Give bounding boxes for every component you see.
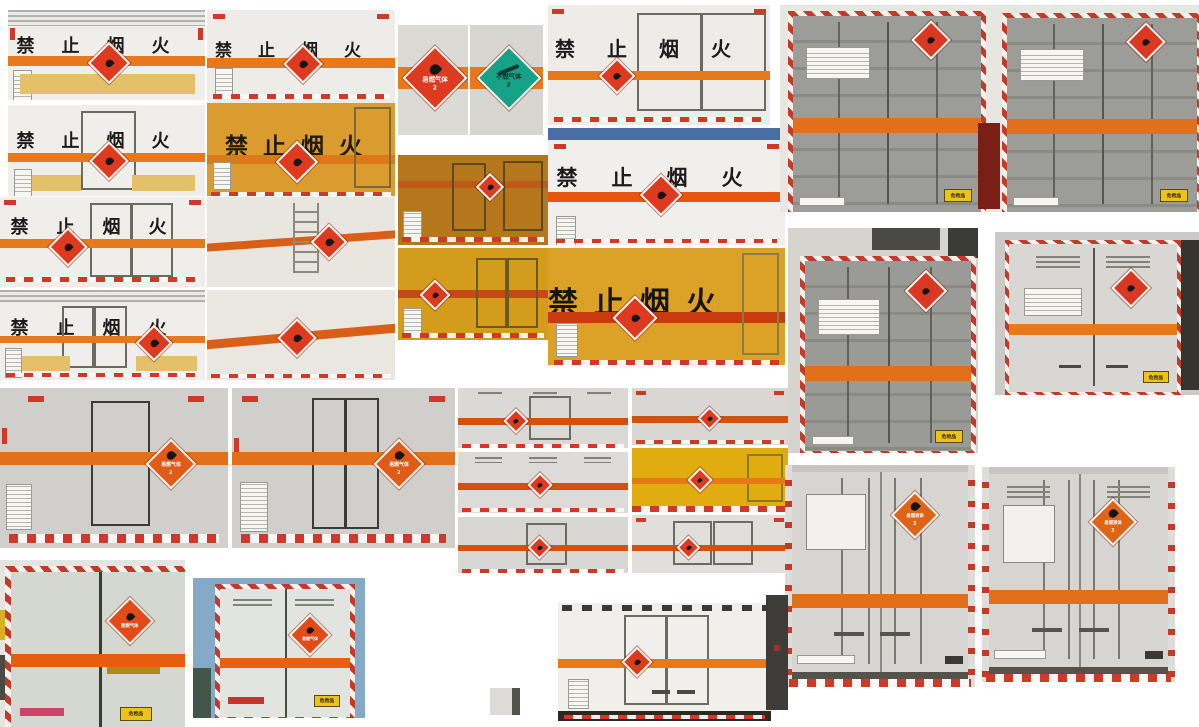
dark-plate xyxy=(945,656,963,664)
photo-no-fire-truck-side-1: 禁止烟火 xyxy=(8,10,205,100)
flammable-liquid-placard-icon: 易燃液体 3 xyxy=(891,491,939,539)
roof-rails xyxy=(0,290,205,303)
reflective-strip xyxy=(632,506,788,512)
reflector-mark xyxy=(554,144,566,149)
warning-stripe xyxy=(989,590,1168,604)
lock-rod xyxy=(1093,248,1095,386)
door-center-gap xyxy=(880,472,882,672)
bumper-shadow xyxy=(989,667,1168,674)
top-rail xyxy=(989,467,1168,474)
lock-rod xyxy=(1068,480,1070,660)
flame-icon xyxy=(612,71,621,80)
photo-truck-side-angled-1 xyxy=(207,197,395,287)
photo-no-fire-orange-box: 禁止烟火 xyxy=(207,103,395,196)
flammable-placard-icon xyxy=(527,472,552,497)
reflector-mark xyxy=(429,396,445,402)
flame-icon xyxy=(324,237,335,248)
flame-icon xyxy=(431,291,439,299)
bottom-label xyxy=(994,650,1046,659)
photo-box-truck-rear-large-2: 易燃液体 3 xyxy=(982,467,1175,682)
reflective-strip xyxy=(789,679,971,687)
reflective-strip xyxy=(6,277,199,282)
reflective-strip xyxy=(211,374,391,378)
photo-small-truck-rear-2: 危险品 易燃气体 xyxy=(193,578,365,718)
warning-stripe xyxy=(458,418,628,425)
vent-grille xyxy=(1106,256,1150,270)
latch-handle xyxy=(880,632,910,636)
rear-door-left xyxy=(476,258,509,328)
photo-panel-plain-2 xyxy=(458,452,628,513)
photo-collage: 禁止烟火 禁止烟火 禁止烟火 禁止烟火 禁止烟火 xyxy=(0,0,1199,727)
info-plate xyxy=(818,299,880,335)
photo-amber-box-rear xyxy=(398,155,548,245)
flammable-gas-placard-icon: 易燃气体 2 xyxy=(374,438,425,489)
bottom-label xyxy=(1013,197,1059,206)
flame-icon xyxy=(922,287,931,296)
vent-grille xyxy=(478,392,502,397)
photo-two-container-trucks: 危险品 危险品 xyxy=(780,5,1199,212)
photo-panel-door-2 xyxy=(458,517,628,573)
flame-icon xyxy=(124,611,135,622)
reflector-mark xyxy=(767,144,779,149)
warning-stripe xyxy=(1009,324,1177,335)
photo-small-truck-rear-1: 危险品 易燃气体 xyxy=(0,560,185,727)
reflector-mark xyxy=(774,645,780,651)
vent-grille xyxy=(584,457,611,463)
latch-handle xyxy=(1079,628,1109,632)
placard-label: 易燃气体 xyxy=(422,77,448,83)
lock-rod xyxy=(887,22,889,204)
photo-no-fire-truck-rear-2: 禁止烟火 xyxy=(0,290,205,380)
flame-icon xyxy=(486,183,494,191)
photo-no-fire-yellow-box-side: 禁止烟火 xyxy=(548,248,785,365)
placard-class: 2 xyxy=(506,81,510,87)
danger-goods-plate: 危险品 xyxy=(1143,371,1169,383)
flame-icon xyxy=(706,415,712,421)
vent-grille xyxy=(233,599,272,608)
flame-icon xyxy=(306,626,315,635)
warning-stripe xyxy=(220,658,350,668)
danger-goods-plate: 危险品 xyxy=(944,189,972,202)
label-bar-pink xyxy=(20,708,64,716)
warning-stripe xyxy=(0,336,205,343)
flame-icon xyxy=(298,59,309,70)
bottom-label xyxy=(812,436,854,445)
reflector-mark xyxy=(188,396,204,402)
flame-icon xyxy=(685,544,691,550)
flame-icon xyxy=(148,338,159,349)
flame-icon xyxy=(926,35,935,44)
container-truck-rear: 危险品 xyxy=(800,256,976,453)
vent-grille xyxy=(1007,486,1050,500)
lock-rod xyxy=(868,478,870,664)
warning-stripe xyxy=(792,594,968,608)
flammable-liquid-placard-icon: 易燃液体 3 xyxy=(1089,498,1137,546)
photo-no-fire-truck-side-blue-top: 禁止烟火 xyxy=(548,128,785,245)
flame-icon xyxy=(292,157,303,168)
reflective-strip xyxy=(241,534,446,543)
latch-handle xyxy=(834,632,864,636)
container-truck-rear-left: 危险品 xyxy=(788,11,986,212)
info-plate xyxy=(806,47,870,79)
yellow-band xyxy=(132,175,195,191)
flame-icon xyxy=(62,242,73,253)
roof-rail xyxy=(562,605,767,611)
flammable-placard-icon xyxy=(1111,268,1151,308)
flame-icon xyxy=(513,418,519,424)
flammable-gas-placard-icon: 易燃气体 xyxy=(289,614,331,656)
flame-icon xyxy=(656,190,667,201)
flammable-gas-placard-icon: 易燃气体 xyxy=(105,597,153,645)
red-truck-between xyxy=(978,123,1000,209)
danger-goods-plate: 危险品 xyxy=(1160,189,1188,202)
latch-handle xyxy=(652,690,670,694)
warning-stripe xyxy=(1007,119,1197,134)
info-plate xyxy=(213,162,231,190)
flammable-placard-icon xyxy=(687,467,712,492)
reflective-strip xyxy=(556,239,777,243)
background-object xyxy=(193,668,211,718)
photo-box-truck-rear-vents: 危险品 xyxy=(995,232,1199,395)
reflector-mark xyxy=(213,14,225,19)
warning-stripe xyxy=(632,545,788,551)
reflective-strip xyxy=(554,117,764,122)
flame-icon xyxy=(103,58,114,69)
warning-stripe xyxy=(548,71,770,80)
latch-handle xyxy=(1059,365,1081,368)
rear-door-left xyxy=(637,13,703,111)
bottom-label xyxy=(799,197,845,206)
rear-door xyxy=(354,107,391,188)
warning-stripe xyxy=(805,366,971,381)
reflector-mark xyxy=(377,14,389,19)
flammable-gas-placard-icon: 易燃气体 2 xyxy=(145,438,196,489)
awning-dark xyxy=(872,228,940,250)
info-plate xyxy=(556,323,578,357)
info-plate xyxy=(14,169,32,196)
flammable-placard-icon xyxy=(503,408,528,433)
warning-stripe xyxy=(11,654,185,667)
info-plate xyxy=(568,679,589,709)
flame-icon xyxy=(428,62,443,77)
rear-doors: 易燃液体 3 xyxy=(989,474,1168,667)
info-plate xyxy=(1024,288,1082,316)
photo-non-flammable-gas-placard: 不燃气体 2 xyxy=(470,25,543,135)
reflector-mark xyxy=(28,396,44,402)
reflective-strip xyxy=(9,534,219,543)
flammable-gas-placard-icon: 易燃气体 2 xyxy=(402,45,467,110)
reflector-mark xyxy=(774,518,784,522)
info-plate xyxy=(240,482,268,532)
photo-panel-plain-1 xyxy=(632,388,788,445)
info-plate xyxy=(1020,49,1084,81)
flame-icon xyxy=(165,449,177,461)
danger-goods-plate: 危险品 xyxy=(314,695,340,707)
flame-icon xyxy=(630,313,641,324)
rear-door-right xyxy=(700,13,766,111)
placard-label: 不燃气体 xyxy=(496,73,522,79)
fragment-shadow xyxy=(512,688,520,715)
reflective-strip xyxy=(402,237,544,242)
rear-door-right xyxy=(505,258,538,328)
lock-rod xyxy=(847,267,849,444)
awning-dark xyxy=(948,228,978,258)
label-bar-red xyxy=(228,697,264,704)
dark-plate xyxy=(1145,651,1163,659)
reflector-mark xyxy=(754,9,766,14)
photo-dark-sliver xyxy=(766,595,788,710)
vent-grille xyxy=(475,457,502,463)
photo-no-fire-truck-side-door: 禁止烟火 xyxy=(8,105,205,196)
truck-rear-doors: 危险品 易燃气体 xyxy=(5,566,185,727)
reflector-mark xyxy=(2,428,7,444)
reflective-strip xyxy=(213,94,389,99)
rear-door-right xyxy=(503,161,543,231)
flame-icon xyxy=(1142,37,1151,46)
rear-door-right xyxy=(713,521,753,565)
top-rail xyxy=(792,465,968,472)
door-center-post xyxy=(99,572,102,727)
door-center-gap xyxy=(1079,474,1081,667)
truck-rear-doors: 危险品 易燃气体 xyxy=(215,584,355,718)
reflective-strip xyxy=(462,508,624,512)
flame-icon xyxy=(103,156,114,167)
flame-icon xyxy=(393,449,405,461)
yellow-band xyxy=(136,356,198,371)
danger-goods-plate: 危险品 xyxy=(935,430,963,443)
flame-icon xyxy=(292,333,303,344)
reflector-mark xyxy=(10,28,15,40)
photo-panel-yellow-door xyxy=(632,448,788,512)
warning-stripe xyxy=(793,118,981,133)
photo-no-fire-truck-rear-1: 禁止烟火 xyxy=(0,197,205,287)
reflector-mark xyxy=(4,200,16,205)
reflector-mark xyxy=(242,396,258,402)
container-truck-rear-right: 危险品 xyxy=(1002,13,1199,212)
vent-grille xyxy=(1107,486,1150,500)
reflective-strip xyxy=(564,715,765,719)
flame-icon xyxy=(696,477,702,483)
photo-white-box-truck-rear xyxy=(558,603,771,721)
label-bar xyxy=(107,667,160,674)
vent-grille xyxy=(529,457,556,463)
rear-doors: 易燃液体 3 xyxy=(792,472,968,672)
flame-icon xyxy=(1126,283,1135,292)
rear-door xyxy=(742,253,779,355)
lock-rod xyxy=(888,267,890,444)
reflector-mark xyxy=(198,28,203,40)
box-truck-rear: 危险品 xyxy=(1005,240,1181,395)
photo-no-fire-truck-rear-3: 禁止烟火 xyxy=(548,5,770,125)
flame-icon xyxy=(633,658,641,666)
flammable-placard-icon xyxy=(278,318,318,358)
lock-rod xyxy=(894,478,896,664)
flame-icon xyxy=(909,500,921,512)
flame-icon xyxy=(537,482,543,488)
flame-icon xyxy=(536,544,542,550)
vent-grille xyxy=(295,599,334,608)
placard-class: 2 xyxy=(433,85,437,91)
reflective-strip xyxy=(636,440,784,444)
reflector-mark xyxy=(189,200,201,205)
latch-handle xyxy=(677,690,695,694)
photo-no-fire-truck-side-2: 禁止烟火 xyxy=(207,10,395,103)
photo-box-truck-rear-large-1: 易燃液体 3 xyxy=(785,465,975,687)
spec-table-plate xyxy=(806,494,866,550)
side-pillar xyxy=(1168,467,1175,682)
non-flammable-gas-placard-icon: 不燃气体 2 xyxy=(476,45,541,110)
photo-gray-truck-side-door: 易燃气体 2 xyxy=(0,388,228,548)
side-pillar xyxy=(982,467,989,682)
danger-goods-plate: 危险品 xyxy=(120,707,152,721)
reflective-strip xyxy=(986,674,1171,682)
reflector-mark xyxy=(636,518,646,522)
latch-handle xyxy=(1032,628,1062,632)
reflective-strip xyxy=(462,444,624,448)
reflective-strip xyxy=(211,192,391,196)
warning-stripe xyxy=(558,659,771,668)
rear-door-left xyxy=(452,163,486,231)
reflective-strip xyxy=(402,333,544,338)
photo-panel-rear-doors xyxy=(632,515,788,573)
roof-rails xyxy=(8,10,205,26)
cab-roof-band xyxy=(548,128,785,140)
photo-fragment xyxy=(490,688,520,715)
reflective-strip xyxy=(6,373,199,377)
reflector-mark xyxy=(552,9,564,14)
photo-flammable-gas-placard: 易燃气体 2 xyxy=(398,25,468,135)
reflective-strip xyxy=(554,360,779,365)
reflector-mark xyxy=(636,391,646,395)
latch-handle xyxy=(1106,365,1128,368)
vent-grille xyxy=(587,392,611,397)
photo-container-truck-rear-tall: 危险品 xyxy=(788,228,978,453)
lock-rod xyxy=(1102,24,1104,204)
photo-panel-door-1 xyxy=(458,388,628,448)
photo-yellow-box-rear xyxy=(398,248,548,340)
bottom-label xyxy=(797,655,855,664)
flame-icon xyxy=(1107,507,1119,519)
info-plate xyxy=(6,484,32,530)
side-pillar xyxy=(968,465,975,687)
photo-truck-side-angled-2 xyxy=(207,290,395,380)
spec-table-plate xyxy=(1003,505,1055,563)
photo-gray-truck-rear-doors: 易燃气体 2 xyxy=(232,388,455,548)
flammable-placard-icon xyxy=(697,406,721,430)
bumper-shadow xyxy=(792,672,968,679)
flammable-placard-icon xyxy=(598,58,635,95)
info-plate xyxy=(215,68,233,96)
reflector-mark xyxy=(774,391,784,395)
warning-stripe xyxy=(0,239,205,248)
reflective-strip xyxy=(462,569,624,573)
vent-grille xyxy=(1036,256,1080,270)
flammable-placard-icon xyxy=(419,279,450,310)
door-center-post xyxy=(285,589,287,717)
